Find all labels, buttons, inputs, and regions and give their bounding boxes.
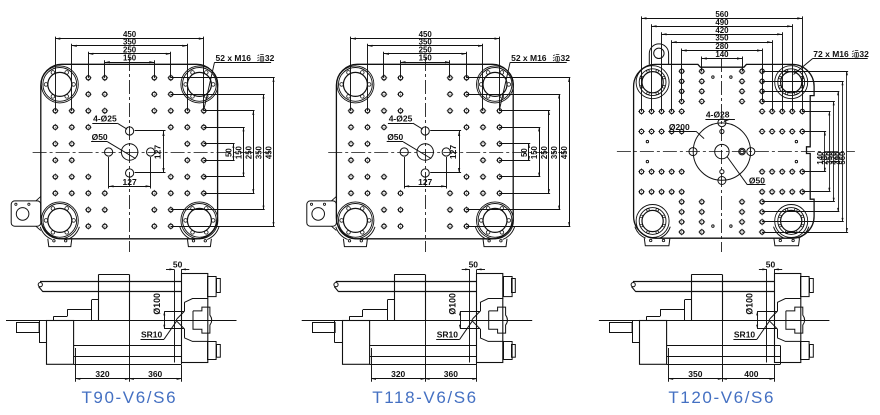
svg-text:150: 150 bbox=[530, 145, 539, 159]
svg-text:52 x M16: 52 x M16 bbox=[511, 53, 547, 63]
svg-text:320: 320 bbox=[95, 369, 109, 379]
svg-text:127: 127 bbox=[123, 177, 137, 187]
svg-text:350: 350 bbox=[550, 145, 559, 159]
svg-text:Ø200: Ø200 bbox=[669, 122, 690, 132]
svg-text:127: 127 bbox=[418, 177, 432, 187]
svg-text:Ø50: Ø50 bbox=[387, 132, 403, 142]
svg-text:560: 560 bbox=[838, 151, 847, 165]
svg-text:T90-V6/S6: T90-V6/S6 bbox=[81, 388, 177, 407]
svg-text:Ø50: Ø50 bbox=[749, 175, 765, 185]
svg-text:Ø100: Ø100 bbox=[448, 293, 458, 315]
svg-text:127: 127 bbox=[448, 145, 458, 159]
svg-text:127: 127 bbox=[153, 145, 163, 159]
svg-text:Ø100: Ø100 bbox=[152, 293, 162, 315]
svg-text:Ø100: Ø100 bbox=[745, 293, 755, 315]
svg-text:450: 450 bbox=[560, 145, 569, 159]
svg-text:SR10: SR10 bbox=[437, 330, 459, 340]
svg-text:140: 140 bbox=[715, 50, 729, 59]
svg-text:Ø50: Ø50 bbox=[92, 132, 108, 142]
svg-text:52 x M16: 52 x M16 bbox=[216, 53, 252, 63]
svg-text:360: 360 bbox=[148, 369, 162, 379]
svg-text:SR10: SR10 bbox=[734, 330, 756, 340]
svg-text:4-Ø25: 4-Ø25 bbox=[93, 114, 117, 124]
svg-text:32: 32 bbox=[561, 53, 571, 63]
svg-text:SR10: SR10 bbox=[141, 330, 163, 340]
svg-text:150: 150 bbox=[235, 145, 244, 159]
svg-text:T118-V6/S6: T118-V6/S6 bbox=[372, 388, 477, 407]
svg-text:400: 400 bbox=[744, 369, 758, 379]
svg-text:50: 50 bbox=[520, 148, 529, 157]
svg-text:4-Ø28: 4-Ø28 bbox=[706, 110, 730, 120]
svg-text:T120-V6/S6: T120-V6/S6 bbox=[668, 388, 775, 407]
svg-text:350: 350 bbox=[255, 145, 264, 159]
svg-text:4-Ø25: 4-Ø25 bbox=[389, 114, 413, 124]
svg-text:72 x M16: 72 x M16 bbox=[813, 49, 849, 59]
svg-text:360: 360 bbox=[444, 369, 458, 379]
svg-text:320: 320 bbox=[391, 369, 405, 379]
svg-text:150: 150 bbox=[123, 54, 137, 63]
svg-text:32: 32 bbox=[265, 53, 275, 63]
svg-text:50: 50 bbox=[766, 259, 776, 269]
svg-text:350: 350 bbox=[688, 369, 702, 379]
svg-text:150: 150 bbox=[419, 54, 433, 63]
svg-text:50: 50 bbox=[225, 148, 234, 157]
svg-text:450: 450 bbox=[265, 145, 274, 159]
svg-text:250: 250 bbox=[244, 145, 253, 159]
svg-text:50: 50 bbox=[469, 259, 479, 269]
svg-text:250: 250 bbox=[540, 145, 549, 159]
svg-text:32: 32 bbox=[859, 49, 869, 59]
svg-text:50: 50 bbox=[173, 259, 183, 269]
